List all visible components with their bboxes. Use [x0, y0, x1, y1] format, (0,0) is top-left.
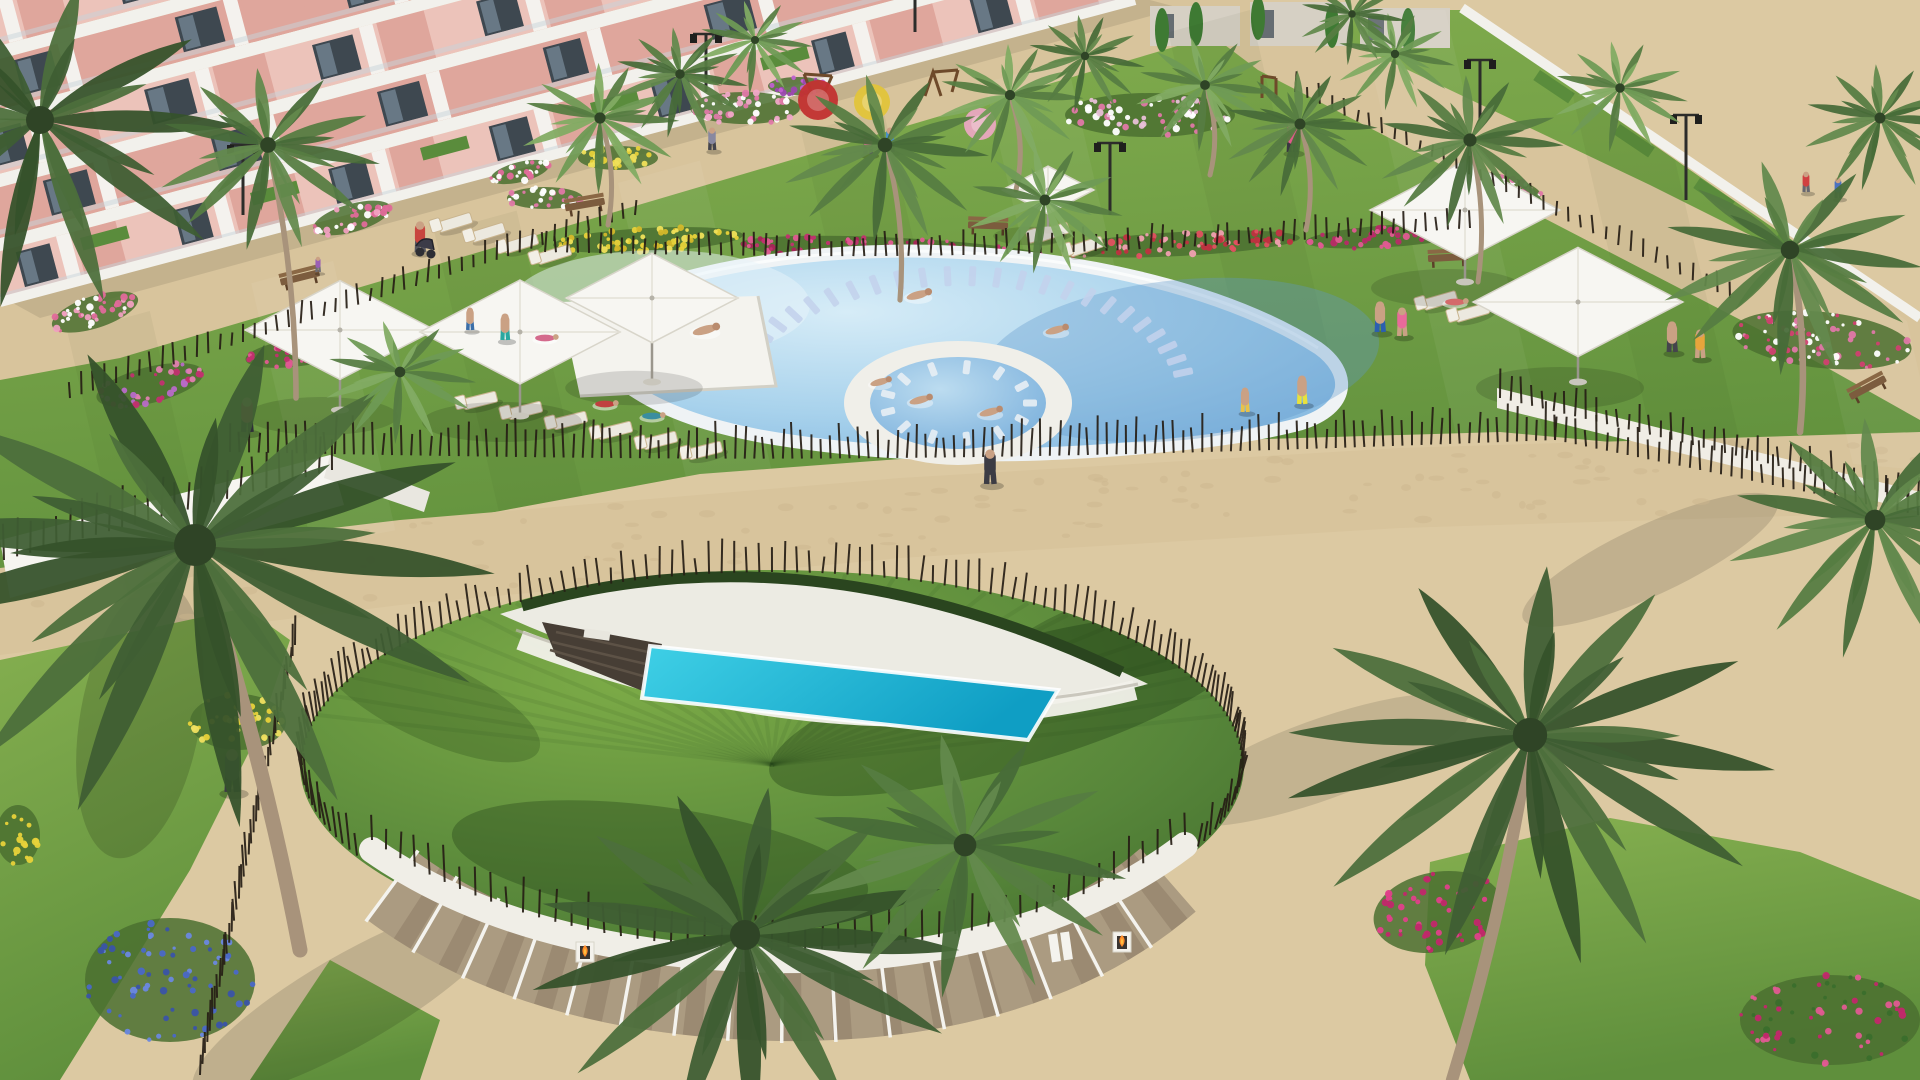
fence-rod [535, 430, 536, 458]
flower [1818, 1035, 1822, 1039]
fence-rod [1136, 416, 1137, 453]
parasol-base [643, 379, 661, 386]
flower [1125, 115, 1130, 120]
flower [118, 976, 122, 980]
fence-rod [776, 235, 777, 255]
flower [20, 818, 24, 822]
cobble-stone [611, 542, 624, 549]
cobble-stone [1519, 501, 1526, 509]
fence-rod [1348, 217, 1349, 236]
fence-rod [1195, 233, 1196, 246]
fence-rod [1064, 584, 1065, 614]
palm-crown [174, 524, 216, 566]
cobble-stone [1655, 510, 1668, 516]
fence-rod [1629, 414, 1630, 429]
fence-rod [542, 232, 543, 245]
cobble-stone [1223, 512, 1230, 517]
fence-rod [658, 440, 659, 458]
cobble-stone [930, 548, 937, 552]
cobble-stone [1085, 523, 1103, 528]
palm-crown [1081, 52, 1089, 60]
cobble-stone [1633, 468, 1647, 474]
flower [1106, 104, 1111, 109]
fence-rod [1669, 432, 1670, 464]
flower [111, 976, 118, 983]
palm-crown [878, 138, 893, 153]
fence-rod [785, 541, 786, 572]
palm-crown [1513, 718, 1547, 752]
fence-rod [1680, 262, 1681, 274]
fence-rod [1606, 410, 1607, 424]
cobble-stone [1573, 479, 1591, 485]
fence-rod [1338, 223, 1339, 237]
flower [1158, 113, 1162, 117]
flower [1852, 998, 1858, 1004]
flower [1139, 123, 1145, 129]
flower [716, 119, 721, 124]
flower [163, 969, 170, 976]
fence-rod [231, 332, 232, 345]
cobble-stone [1093, 477, 1108, 482]
fence-rod [1415, 219, 1416, 232]
flower [208, 984, 213, 989]
fence-rod [573, 434, 574, 458]
fence-rod [208, 332, 209, 354]
flower [737, 100, 744, 107]
flower [1823, 996, 1827, 1000]
flower [728, 111, 734, 117]
flower [534, 203, 538, 207]
cobble-stone [1526, 504, 1536, 510]
head [1298, 375, 1306, 383]
lantern [1464, 60, 1471, 69]
flower [530, 187, 536, 193]
fence-rod [162, 345, 163, 368]
cobble-stone [828, 505, 837, 510]
cobble-stone [931, 488, 948, 494]
flower [549, 189, 555, 195]
flower [183, 971, 190, 978]
flower [1790, 1010, 1794, 1014]
fence-rod [635, 200, 636, 215]
fence-rod [1297, 421, 1298, 450]
cobble-stone [741, 528, 750, 534]
flower [1176, 100, 1180, 104]
flower [1194, 110, 1198, 114]
flower [114, 931, 121, 938]
flower [1104, 120, 1111, 127]
fence-rod [1221, 430, 1222, 452]
fire-feature [1113, 932, 1131, 952]
flower [1817, 983, 1822, 988]
fence-rod [897, 430, 898, 458]
flower [547, 203, 551, 207]
flower [1775, 999, 1782, 1006]
bench-leg [571, 211, 572, 217]
flower [12, 814, 17, 819]
spa-seat [1023, 400, 1037, 407]
fence-rod [925, 434, 926, 458]
flower [1769, 1017, 1773, 1021]
flower [642, 161, 648, 167]
cobble-stone [651, 511, 667, 518]
fence-rod [888, 440, 889, 458]
fence-rod [381, 277, 382, 297]
fence-rod [1670, 412, 1671, 440]
fence-rod [249, 833, 250, 854]
flower [627, 148, 631, 152]
flower [539, 191, 545, 197]
cobble-stone [1582, 458, 1591, 465]
flower [147, 928, 150, 931]
fence-rod [69, 382, 70, 398]
fence-rod [1556, 201, 1557, 216]
flower [107, 936, 113, 942]
flower [1773, 1048, 1776, 1051]
flower [783, 98, 790, 105]
flower [1866, 1034, 1873, 1041]
fence-rod [278, 429, 279, 453]
fence-rod [219, 958, 220, 987]
flower [753, 89, 760, 96]
fence-rod [232, 902, 233, 932]
fence-rod [1425, 212, 1426, 231]
cobble-stone [904, 492, 921, 496]
cobble-stone [1012, 509, 1026, 512]
fence-rod [655, 241, 656, 255]
fence-rod [930, 237, 931, 255]
palm-crown [260, 137, 276, 153]
flower [1763, 1033, 1769, 1039]
fence-rod [1631, 230, 1632, 251]
fence-rod [1667, 255, 1668, 268]
fence-rod [288, 310, 289, 327]
flower [228, 990, 235, 997]
fence-rod [939, 911, 940, 937]
flower [1874, 982, 1878, 986]
flower [187, 984, 191, 988]
fence-rod [1721, 445, 1722, 474]
lantern [1094, 143, 1101, 152]
flower [1764, 1005, 1768, 1009]
flower [1893, 1000, 1900, 1007]
parasol-finial [338, 328, 343, 333]
fence-rod [1517, 406, 1518, 441]
fence-rod [1354, 420, 1355, 447]
flower [1117, 122, 1122, 127]
cobble-stone [1532, 499, 1546, 505]
cobble-stone [1575, 465, 1589, 470]
cobble-stone [1126, 487, 1139, 491]
fence-rod [908, 239, 909, 256]
fence-rod [468, 422, 469, 457]
flower [86, 994, 91, 999]
flower [213, 961, 217, 965]
flower [747, 119, 753, 125]
fence-rod [311, 301, 312, 320]
flower [718, 110, 723, 115]
flower [772, 95, 776, 99]
flower [590, 162, 595, 167]
swimmer-head [926, 394, 933, 401]
flower [558, 188, 565, 195]
cobble-stone [1460, 488, 1472, 492]
fence-rod [1488, 418, 1489, 442]
flower [118, 1014, 121, 1017]
flower [168, 977, 174, 983]
flower [1859, 1044, 1863, 1048]
person-shadow [315, 272, 326, 276]
flower [522, 191, 525, 194]
person-shadow [1801, 192, 1815, 197]
cobble-stone [1266, 456, 1282, 464]
fence-rod [207, 1012, 208, 1042]
head [1398, 307, 1406, 315]
cobble-stone [1538, 513, 1547, 520]
cobble-stone [1652, 469, 1659, 473]
fence-rod [1724, 429, 1725, 453]
palm-crown [675, 69, 685, 79]
flower [790, 91, 794, 95]
lounger-backrest [589, 425, 603, 440]
flower [1190, 123, 1195, 128]
flower [26, 856, 33, 863]
parasol-base [511, 413, 529, 420]
flower [785, 110, 789, 114]
palm-crown [1040, 195, 1051, 206]
fence-rod [644, 238, 645, 254]
fence-rod [1714, 427, 1715, 451]
cobble-stone [1087, 502, 1103, 508]
flower [787, 114, 793, 120]
cobble-stone [1692, 498, 1710, 505]
cobble-stone [1492, 491, 1501, 499]
parasol-finial [1576, 300, 1581, 305]
fence-rod [699, 233, 700, 255]
flower [1812, 1007, 1815, 1010]
cobble-stone [613, 571, 621, 574]
cobble-stone [856, 502, 868, 509]
parasol-shadow [422, 402, 582, 442]
flower [704, 98, 708, 102]
cypress-tree [1155, 8, 1169, 52]
fence-rod [809, 550, 810, 572]
fence-rod [497, 240, 498, 260]
lying-body [1445, 299, 1465, 306]
flower [1843, 1000, 1847, 1004]
lantern [1489, 60, 1496, 69]
fence-rod [972, 893, 973, 930]
palm-crown [1391, 50, 1399, 58]
cobble-stone [1264, 476, 1281, 483]
fence-rod [1163, 421, 1164, 453]
fence-rod [448, 428, 449, 456]
flower [163, 1015, 169, 1021]
flower [136, 985, 141, 990]
person-shadow [464, 329, 479, 334]
fence-rod [1052, 233, 1053, 253]
flower [188, 721, 193, 726]
fence-rod [1054, 588, 1055, 611]
cobble-stone [1476, 480, 1490, 485]
flower [191, 1009, 198, 1016]
flower [705, 114, 712, 121]
cobble-stone [1595, 465, 1606, 473]
flower [11, 861, 16, 866]
flower [1172, 100, 1175, 103]
flower [791, 76, 796, 81]
flower [712, 102, 715, 105]
fence-rod [1531, 385, 1532, 406]
cobble-stone [918, 535, 926, 539]
fence-rod [611, 568, 612, 584]
flower [779, 88, 784, 93]
flower [725, 92, 730, 97]
fence-rod [1496, 417, 1497, 442]
flower [1842, 1005, 1847, 1010]
bench-leg [315, 277, 316, 283]
fence-rod [1742, 446, 1743, 479]
flower [1739, 1013, 1743, 1017]
flower [1901, 1035, 1907, 1041]
fence-rod [968, 560, 969, 590]
palm-crown [395, 367, 406, 378]
fence-rod [1172, 230, 1173, 248]
flower [1880, 1052, 1884, 1056]
fence-rod [1469, 422, 1470, 443]
cobble-stone [883, 506, 892, 514]
flower [769, 83, 774, 88]
head [1463, 298, 1469, 304]
fence-rod [577, 238, 578, 253]
flower [203, 734, 209, 740]
flower [1116, 106, 1123, 113]
fence-rod [1258, 414, 1259, 450]
fence-rod [1392, 416, 1393, 446]
flower [538, 198, 543, 203]
fence-rod [1403, 211, 1404, 233]
head [416, 221, 424, 229]
flower [16, 836, 23, 843]
fence-rod [371, 815, 372, 840]
fence-rod [200, 1055, 201, 1075]
fence-rod [1394, 128, 1395, 139]
fence-rod [1371, 212, 1372, 236]
flower [250, 982, 256, 988]
cobble-stone [1415, 474, 1424, 482]
person-shadow [706, 149, 721, 154]
cobble-stone [607, 503, 624, 510]
fence-rod [798, 233, 799, 256]
fence-rod [1162, 224, 1163, 248]
cobble-stone [1178, 486, 1187, 493]
fence-rod [1117, 420, 1118, 455]
flower [186, 933, 192, 939]
fence-rod [1231, 428, 1232, 451]
flower [13, 847, 21, 855]
fence-rod [640, 425, 641, 458]
fence-rod [515, 418, 516, 457]
cobble-stone [1342, 509, 1357, 514]
fence-rod [1459, 424, 1460, 444]
fence-rod [1459, 209, 1460, 228]
palm-crown [1781, 241, 1799, 259]
lounger-backrest [679, 445, 693, 460]
fence-rod [210, 1000, 211, 1031]
head [985, 449, 995, 459]
flower-bed-foliage [1740, 975, 1920, 1065]
flower [1874, 1017, 1881, 1024]
cobble-stone [1033, 478, 1044, 486]
flower [1885, 1001, 1892, 1008]
head [316, 257, 320, 261]
fence-rod [819, 234, 820, 256]
flower [1066, 119, 1072, 125]
lantern [1119, 143, 1126, 152]
head [660, 412, 666, 418]
bench-leg [286, 285, 287, 291]
lantern [690, 34, 697, 43]
flower [107, 1009, 112, 1014]
flower [192, 726, 199, 733]
fence-rod [202, 1038, 203, 1064]
palm-crown [1875, 113, 1886, 124]
fence-rod [863, 238, 864, 256]
fence-rod [724, 440, 725, 459]
flower [614, 158, 621, 165]
cobble-stone [975, 503, 991, 509]
flower [223, 1022, 228, 1027]
fence-rod [672, 550, 673, 577]
fence-rod [715, 421, 716, 459]
fence-rod [599, 207, 600, 226]
flower [1878, 982, 1884, 988]
cobble-stone [1349, 494, 1358, 501]
flower [1822, 972, 1829, 979]
fence-rod [796, 546, 797, 572]
fence-rod [735, 425, 736, 459]
palm-crown [1200, 80, 1210, 90]
fence-rod [1021, 418, 1022, 456]
cobble-stone [520, 518, 527, 524]
cobble-stone [1528, 454, 1536, 458]
flower [549, 196, 553, 200]
palm-crown [1463, 133, 1476, 146]
palm-crown [26, 106, 54, 134]
fence-rod [884, 561, 885, 577]
cobble-stone [901, 507, 917, 511]
flower [87, 984, 92, 989]
flower [1774, 1035, 1780, 1041]
fence-rod [896, 234, 897, 256]
flower [1141, 116, 1146, 121]
fence-rod [1401, 420, 1402, 446]
fence-rod [506, 424, 507, 457]
fence-rod [577, 211, 578, 234]
fence-rod [830, 435, 831, 458]
flower [1789, 1037, 1796, 1044]
head [467, 308, 473, 314]
flower [208, 947, 212, 951]
fence-rod [1172, 420, 1173, 453]
fence-rod [1143, 841, 1144, 863]
fence-rod [1145, 434, 1146, 453]
cobble-stone [1636, 498, 1646, 505]
cobble-stone [1457, 468, 1468, 474]
fence-rod [746, 547, 747, 572]
head [613, 400, 619, 406]
cobble-stone [1200, 483, 1214, 489]
